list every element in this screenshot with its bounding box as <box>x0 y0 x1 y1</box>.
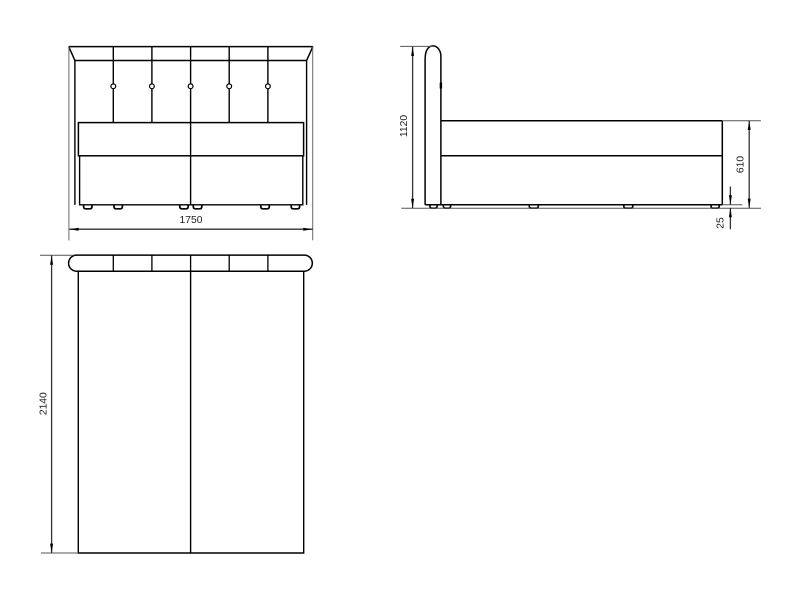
svg-text:1120: 1120 <box>399 115 410 137</box>
svg-text:25: 25 <box>715 217 726 229</box>
svg-text:1750: 1750 <box>180 215 203 226</box>
svg-text:2140: 2140 <box>38 392 49 415</box>
svg-text:610: 610 <box>736 156 747 173</box>
